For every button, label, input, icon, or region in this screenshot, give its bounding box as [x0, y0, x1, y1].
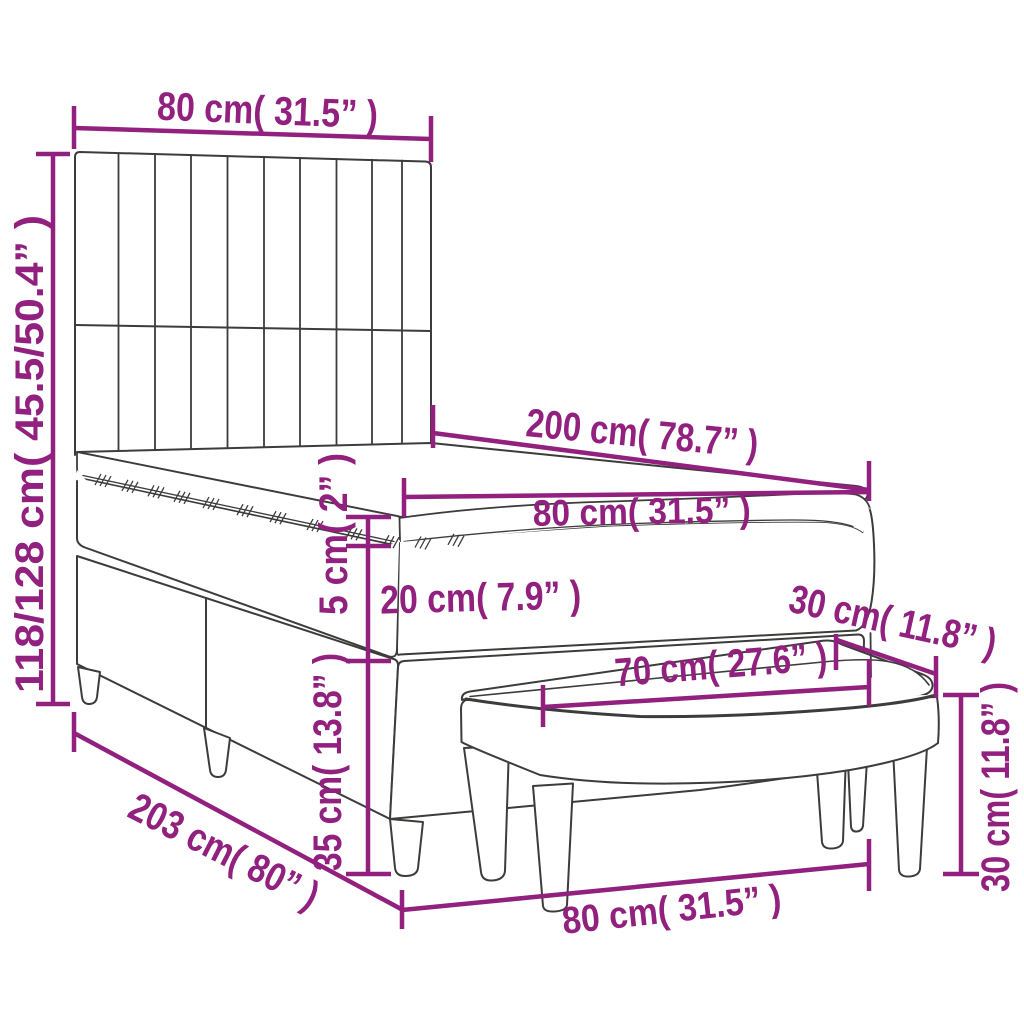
- svg-text:80 cm( 31.5” ): 80 cm( 31.5” ): [156, 85, 379, 138]
- svg-text:80 cm( 31.5” ): 80 cm( 31.5” ): [532, 489, 751, 534]
- svg-text:5 cm( 2” ): 5 cm( 2” ): [312, 453, 356, 615]
- svg-text:30 cm( 11.8” ): 30 cm( 11.8” ): [974, 682, 1018, 892]
- svg-text:20 cm( 7.9” ): 20 cm( 7.9” ): [380, 573, 582, 622]
- svg-text:118/128 cm( 45.5/50.4” ): 118/128 cm( 45.5/50.4” ): [8, 215, 52, 693]
- svg-text:35 cm( 13.8” ): 35 cm( 13.8” ): [306, 653, 350, 871]
